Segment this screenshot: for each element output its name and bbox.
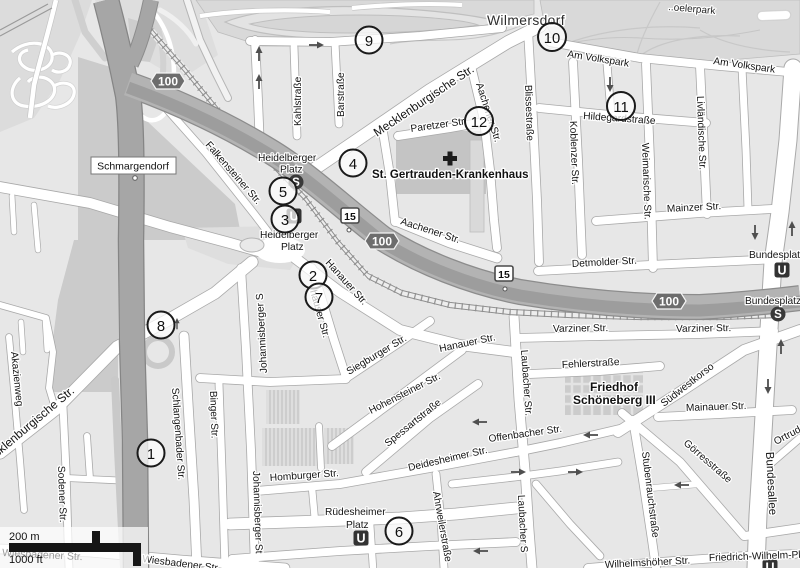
svg-text:S: S (774, 309, 782, 321)
svg-text:10: 10 (544, 31, 560, 47)
svg-text:200 m: 200 m (9, 531, 40, 543)
svg-text:1000 ft: 1000 ft (9, 554, 43, 566)
svg-text:Platz: Platz (346, 520, 369, 531)
svg-text:U: U (777, 264, 786, 278)
svg-text:Koblenzer Str.: Koblenzer Str. (567, 121, 580, 185)
svg-text:12: 12 (471, 115, 487, 131)
svg-text:6: 6 (395, 525, 403, 541)
svg-text:Barstraße: Barstraße (336, 72, 347, 117)
svg-text:7: 7 (315, 291, 323, 307)
svg-text:Binger Str.: Binger Str. (207, 391, 220, 439)
svg-text:Schöneberg III: Schöneberg III (573, 393, 656, 407)
svg-text:15: 15 (344, 211, 356, 223)
svg-text:Varziner Str.: Varziner Str. (553, 323, 608, 335)
svg-text:Bundesplatz: Bundesplatz (749, 250, 800, 261)
svg-text:U: U (356, 532, 365, 546)
svg-text:8: 8 (157, 319, 165, 335)
svg-text:1: 1 (147, 447, 155, 463)
svg-text:St. Gertrauden-Krankenhaus: St. Gertrauden-Krankenhaus (372, 169, 529, 181)
svg-text:100: 100 (372, 234, 392, 248)
svg-text:Friedhof: Friedhof (590, 380, 639, 394)
svg-text:Platz: Platz (281, 242, 304, 253)
svg-text:4: 4 (349, 157, 357, 173)
svg-text:3: 3 (281, 213, 289, 229)
svg-text:2: 2 (309, 269, 317, 285)
svg-text:Platz: Platz (280, 165, 303, 176)
svg-text:11: 11 (613, 100, 628, 116)
svg-text:Bundesplatz: Bundesplatz (745, 296, 800, 307)
svg-text:Blissestraße: Blissestraße (522, 85, 535, 142)
svg-text:5: 5 (279, 185, 287, 201)
svg-text:Kahlstraße: Kahlstraße (293, 76, 304, 126)
svg-text:100: 100 (659, 294, 679, 308)
svg-text:9: 9 (365, 34, 373, 50)
svg-text:Rüdesheimer: Rüdesheimer (325, 507, 386, 518)
svg-text:Mainauer Str.: Mainauer Str. (686, 401, 747, 414)
svg-text:Schmargendorf: Schmargendorf (97, 161, 169, 173)
svg-text:100: 100 (158, 74, 178, 88)
svg-text:Heidelberger: Heidelberger (258, 153, 317, 164)
svg-text:15: 15 (498, 269, 510, 281)
svg-text:Sodener Str.: Sodener Str. (55, 466, 68, 523)
svg-text:Varziner Str.: Varziner Str. (676, 323, 731, 335)
